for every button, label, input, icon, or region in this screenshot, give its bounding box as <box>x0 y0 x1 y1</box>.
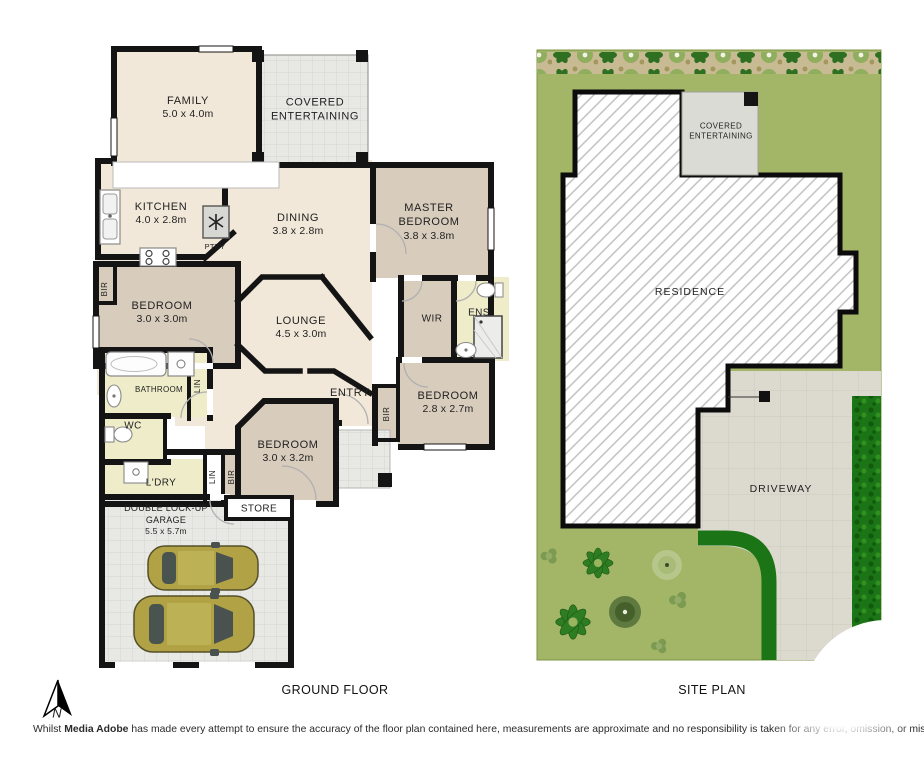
ens-toilet-icon <box>477 283 503 297</box>
hedge-top <box>537 52 881 74</box>
north-label: N <box>52 706 61 723</box>
car-icon <box>134 592 254 656</box>
room-label-pantry: PTRY <box>205 242 226 252</box>
plant-icon <box>556 605 591 640</box>
ground-floor-title: GROUND FLOOR <box>282 682 389 698</box>
room-label-wc: WC <box>124 420 141 433</box>
site-plan-title: SITE PLAN <box>678 682 746 698</box>
room-label-bedroom2: BEDROOM 3.0 x 3.0m <box>131 299 192 327</box>
room-label-dining: DINING 3.8 x 2.8m <box>272 211 323 239</box>
kitchen-counter <box>113 162 279 188</box>
room-label-store: STORE <box>241 503 277 516</box>
closet-label-bir3: BIR <box>382 407 392 422</box>
closet-label-lin2: LIN <box>208 470 218 484</box>
laundry-tub-icon <box>124 462 148 483</box>
site-label-residence: RESIDENCE <box>655 286 725 300</box>
floor-plan-graphic <box>93 46 509 668</box>
plant-icon <box>609 596 641 628</box>
room-label-master-bedroom: MASTER BEDROOM 3.8 x 3.8m <box>381 201 477 243</box>
floorplan-page: { "floor_plan": { "title": "GROUND FLOOR… <box>0 0 924 772</box>
site-plan-graphic <box>537 50 924 772</box>
ens-shower-icon <box>474 316 502 358</box>
fridge-icon <box>203 206 229 238</box>
room-label-bedroom4: BEDROOM 2.8 x 2.7m <box>417 389 478 417</box>
room-label-wir: WIR <box>422 313 443 326</box>
hedge-right <box>852 396 881 660</box>
closet-label-lin1: LIN <box>193 379 203 393</box>
room-label-entry: ENTRY <box>330 386 370 400</box>
room-label-covered-entertaining: COVERED ENTERTAINING <box>267 96 363 125</box>
room-label-bedroom3: BEDROOM 3.0 x 3.2m <box>257 438 318 466</box>
room-label-ens: ENS <box>468 307 490 320</box>
plant-icon <box>583 548 613 578</box>
room-label-family: FAMILY 5.0 x 4.0m <box>162 94 213 122</box>
shower-icon <box>168 352 194 376</box>
site-label-covered-entertaining: COVERED ENTERTAINING <box>681 122 761 143</box>
room-label-lounge: LOUNGE 4.5 x 3.0m <box>275 314 326 342</box>
closet-label-bir1: BIR <box>100 282 110 297</box>
basin-icon <box>107 385 121 407</box>
sink-icon <box>100 190 120 244</box>
room-label-kitchen: KITCHEN 4.0 x 2.8m <box>135 200 187 228</box>
room-label-laundry: L'DRY <box>146 477 176 490</box>
room-label-garage: DOUBLE LOCK-UP GARAGE 5.5 x 5.7m <box>107 503 225 537</box>
car-icon <box>148 542 258 594</box>
site-label-driveway: DRIVEWAY <box>750 483 813 497</box>
cooktop-icon <box>140 248 176 266</box>
room-label-bathroom: BATHROOM <box>135 385 183 395</box>
closet-label-bir2: BIR <box>227 470 237 485</box>
disclaimer-fade-overlay <box>772 710 912 742</box>
plant-icon <box>652 550 682 580</box>
ens-basin-icon <box>456 343 476 358</box>
